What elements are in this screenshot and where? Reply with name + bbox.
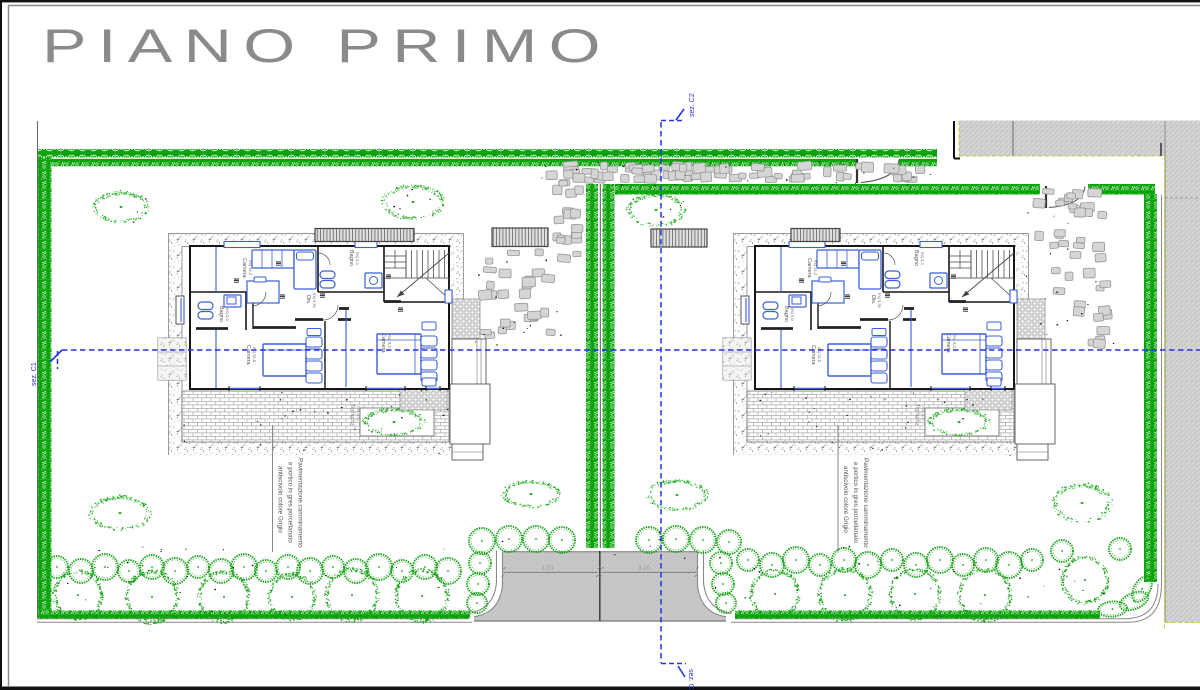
svg-text:Pavimentazione camminamento: Pavimentazione camminamento bbox=[297, 458, 304, 548]
svg-text:PIANO PRIMO: PIANO PRIMO bbox=[42, 20, 612, 72]
svg-text:Pavimentazione camminamento: Pavimentazione camminamento bbox=[862, 458, 869, 548]
svg-text:e portico in gres porcellanato: e portico in gres porcellanato bbox=[287, 462, 294, 543]
svg-text:e portico in gres porcellanato: e portico in gres porcellanato bbox=[852, 462, 859, 543]
svg-text:3.20: 3.20 bbox=[541, 565, 554, 572]
svg-text:sez. C2: sez. C2 bbox=[687, 669, 694, 690]
svg-text:3.20: 3.20 bbox=[638, 565, 651, 572]
svg-text:antiscivolo colore Grigio: antiscivolo colore Grigio bbox=[842, 466, 849, 533]
svg-text:sez. C2: sez. C2 bbox=[689, 93, 696, 117]
svg-text:sez. C1: sez. C1 bbox=[31, 362, 38, 386]
svg-text:antiscivolo colore Grigio: antiscivolo colore Grigio bbox=[277, 466, 284, 533]
